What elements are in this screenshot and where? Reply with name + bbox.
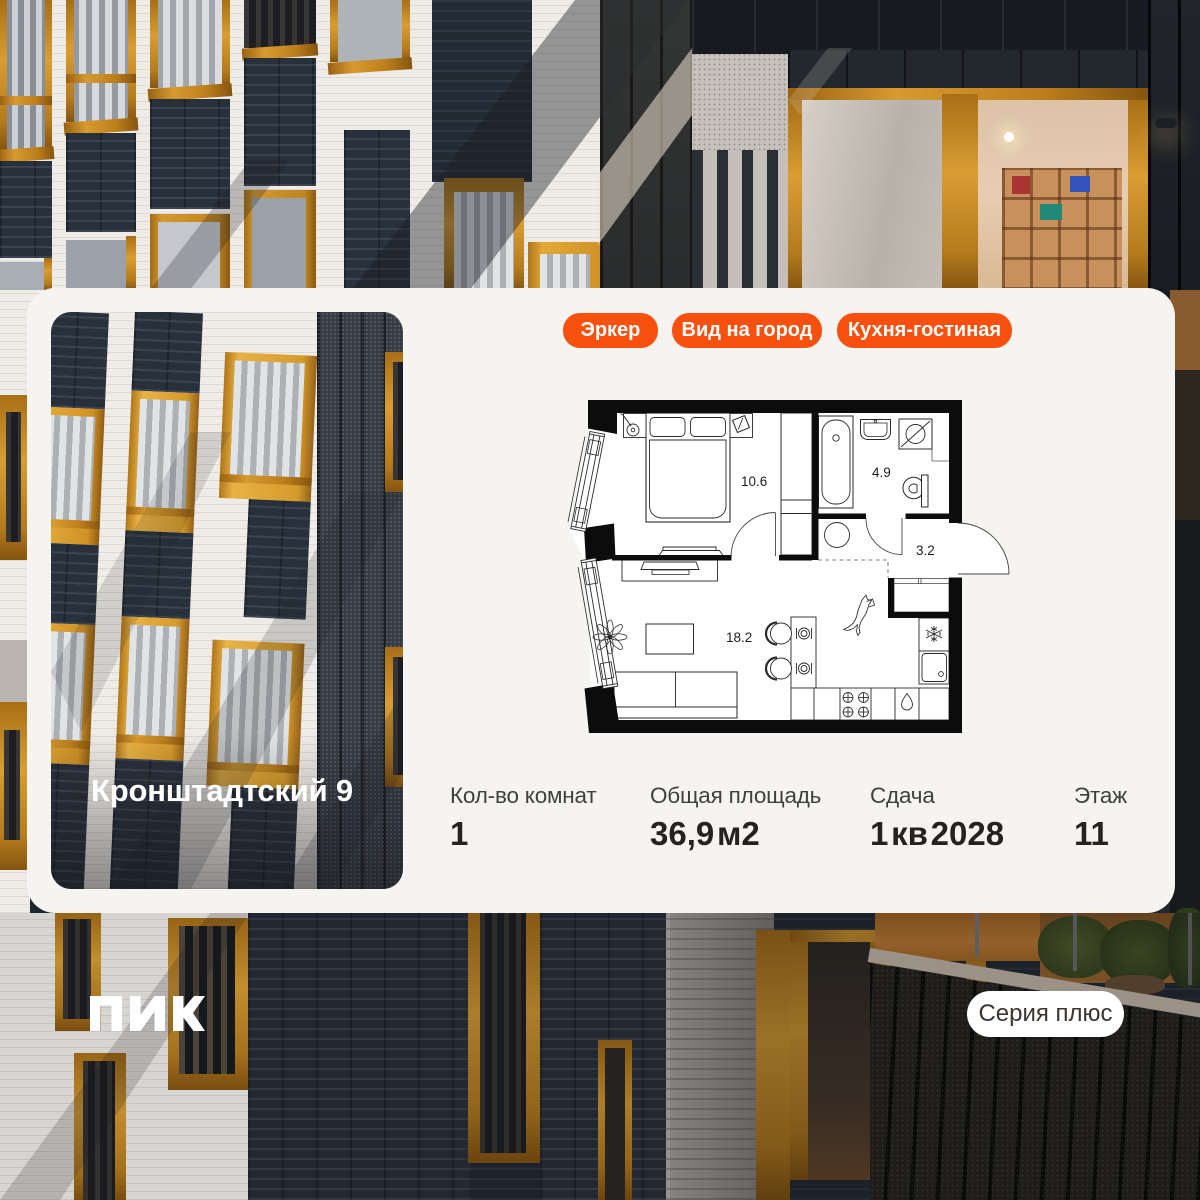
svg-text:4.9: 4.9 [872, 465, 891, 480]
svg-text:18.2: 18.2 [726, 630, 752, 645]
svg-text:3.2: 3.2 [916, 543, 935, 558]
svg-text:10.6: 10.6 [741, 474, 767, 489]
